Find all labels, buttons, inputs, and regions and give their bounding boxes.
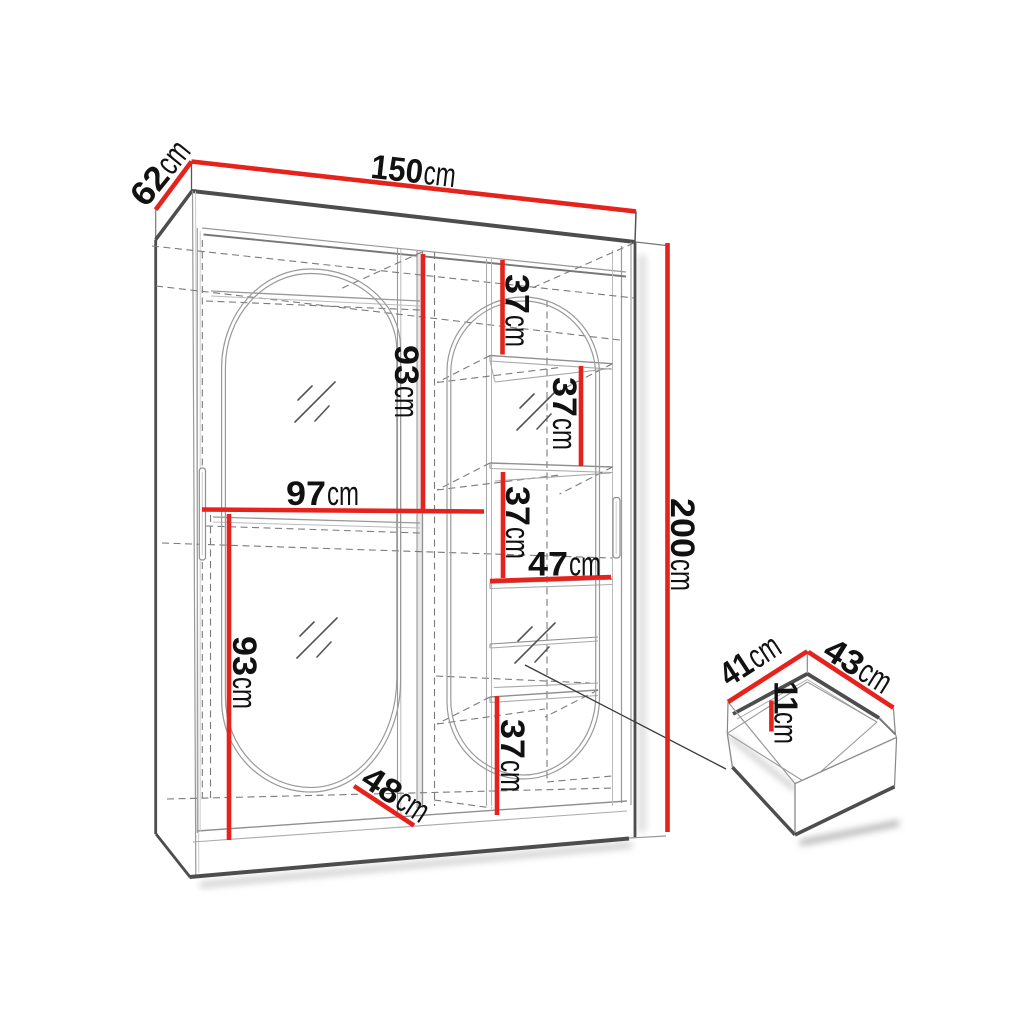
svg-text:11cm: 11cm [768,681,805,744]
svg-text:37cm: 37cm [545,377,583,450]
svg-text:200cm: 200cm [663,498,701,591]
svg-text:93cm: 93cm [387,345,425,418]
svg-text:37cm: 37cm [498,274,536,347]
svg-text:37cm: 37cm [493,719,531,792]
svg-text:93cm: 93cm [225,636,263,709]
svg-text:97cm: 97cm [286,475,359,513]
svg-text:47cm: 47cm [528,546,601,584]
